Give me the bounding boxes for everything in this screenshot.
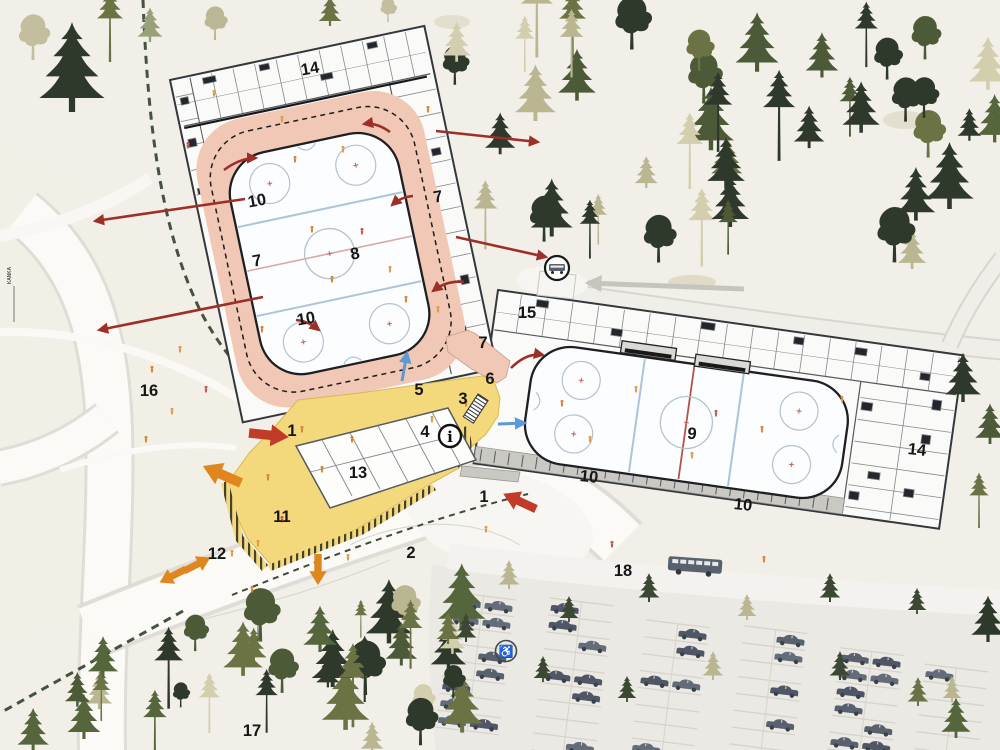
- info-icon: i: [439, 425, 461, 447]
- zone-number-10: 10: [733, 495, 753, 515]
- zone-number-12: 12: [208, 545, 226, 563]
- zone-number-10: 10: [295, 309, 316, 330]
- zone-number-6: 6: [485, 370, 494, 388]
- zone-number-18: 18: [614, 562, 632, 580]
- parking-lot: ♿: [429, 556, 1000, 750]
- zone-number-13: 13: [349, 464, 367, 482]
- accessible-parking-icon: ♿: [496, 641, 517, 662]
- zone-number-1: 1: [479, 488, 488, 506]
- bus-in-circle-icon: [545, 256, 569, 280]
- zone-number-10: 10: [579, 467, 599, 487]
- zone-number-15: 15: [518, 304, 536, 322]
- zone-number-4: 4: [420, 423, 430, 441]
- zone-number-11: 11: [273, 508, 290, 526]
- zone-number-5: 5: [414, 381, 423, 399]
- zone-number-17: 17: [243, 722, 261, 740]
- zone-number-16: 16: [140, 382, 158, 400]
- zone-number-2: 2: [406, 544, 415, 562]
- zone-number-1: 1: [287, 422, 296, 440]
- zone-number-7: 7: [478, 334, 487, 352]
- svg-text:♿: ♿: [499, 645, 514, 659]
- svg-text:KANKA: KANKA: [7, 266, 13, 284]
- zone-number-10: 10: [246, 191, 267, 212]
- zone-number-3: 3: [458, 390, 467, 408]
- site-plan-figure: ♿: [0, 0, 1000, 750]
- svg-text:i: i: [447, 428, 453, 446]
- zone-number-14: 14: [907, 440, 928, 460]
- zone-number-9: 9: [686, 425, 697, 444]
